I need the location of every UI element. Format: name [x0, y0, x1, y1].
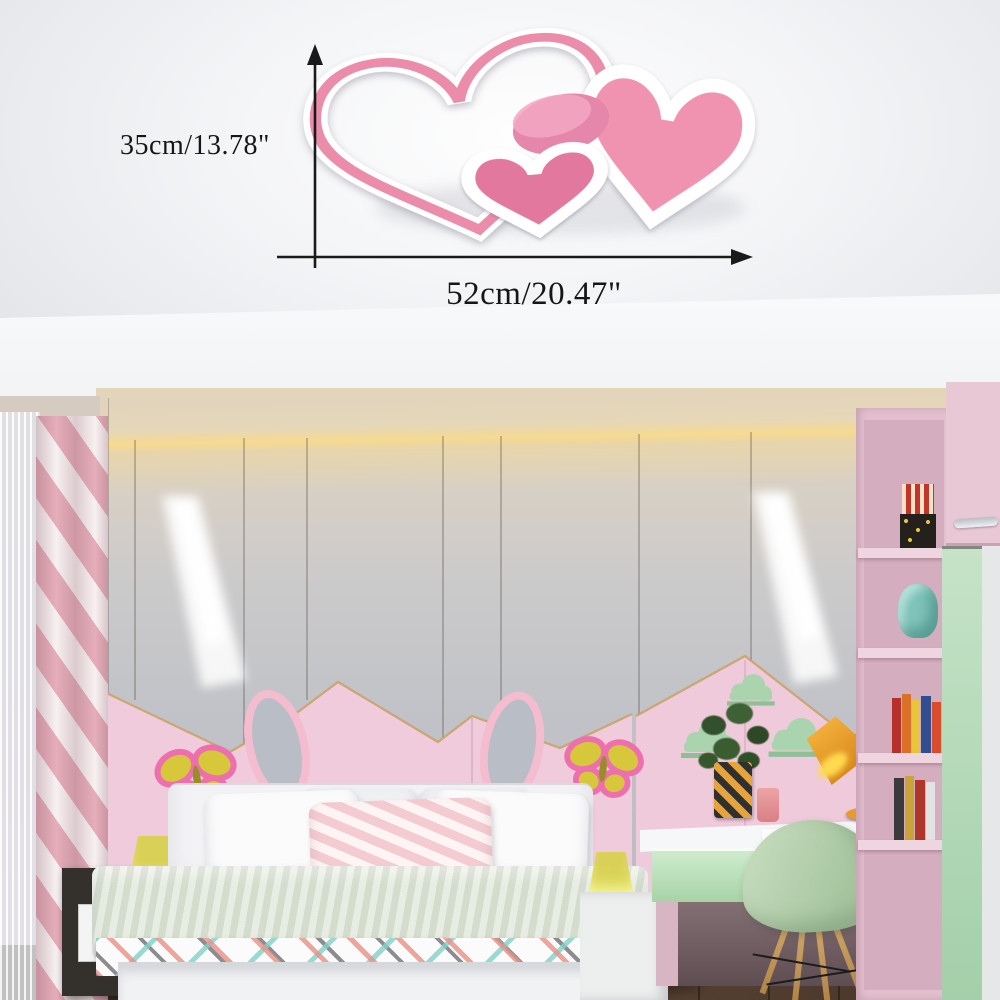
heart-ceiling-lamp: [308, 28, 755, 252]
width-dimension-label: 52cm/20.47": [396, 276, 672, 313]
shelf-board: [858, 840, 950, 850]
width-arrow-icon: [277, 249, 753, 265]
books-row: [894, 774, 940, 840]
bedroom-product-photo: 35cm/13.78" 52cm/20.47": [0, 0, 1000, 1000]
sliding-door-green: [942, 546, 982, 1000]
books-row: [892, 694, 942, 756]
pink-cup: [757, 788, 779, 822]
shelf-board: [858, 648, 950, 658]
cloud-cushion: [898, 584, 938, 638]
wall-spotlight-cones: [162, 492, 838, 688]
bookshelf: [856, 408, 952, 1000]
sheer-curtain: [0, 412, 40, 1000]
shelf-board: [858, 753, 950, 763]
patterned-vase: [714, 762, 752, 818]
bed-base: [118, 962, 652, 1000]
shelf-board: [858, 548, 950, 558]
decorative-box: [902, 484, 934, 514]
decorative-box: [900, 514, 936, 548]
sliding-door-gray: [982, 546, 1000, 1000]
nightstand-right: [580, 892, 668, 1000]
height-dimension-label: 35cm/13.78": [96, 130, 294, 162]
